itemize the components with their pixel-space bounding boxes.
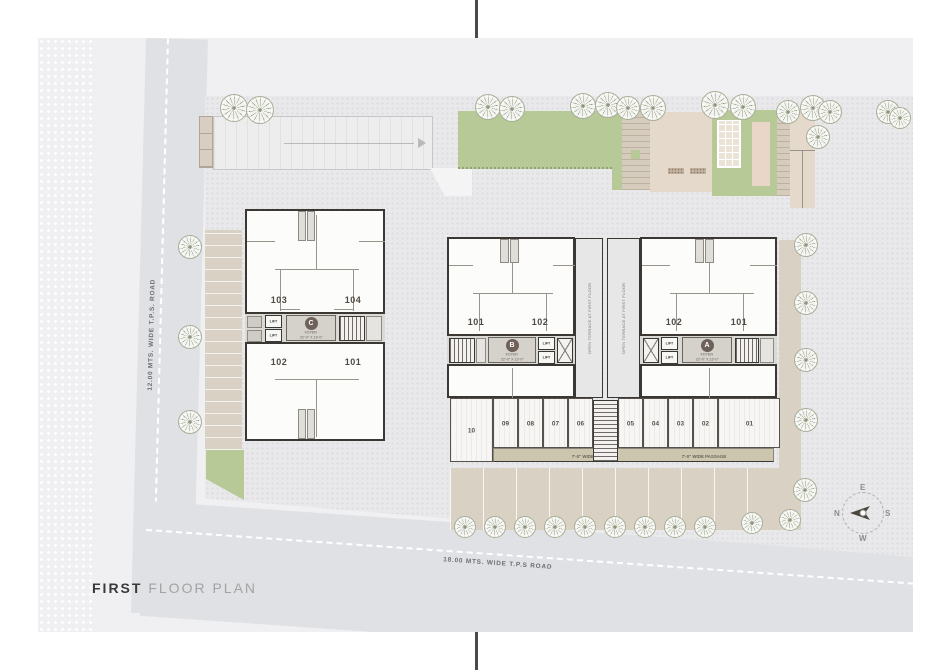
lift-box: LIFT xyxy=(265,329,282,342)
tree-icon xyxy=(806,125,830,149)
shop-label: 09 xyxy=(502,419,509,426)
tree-icon xyxy=(794,291,818,315)
staircase xyxy=(339,316,365,341)
tower-c-core: LIFT LIFT C FOYER 22'-0" X 13'-0" xyxy=(245,312,385,344)
planter xyxy=(631,150,640,159)
stair-landing xyxy=(760,338,774,363)
shop-unit: 02 xyxy=(693,398,718,448)
void-shaft xyxy=(643,338,659,363)
lift-label: LIFT xyxy=(666,355,674,359)
registration-mark-top xyxy=(475,0,478,38)
parking-ramp xyxy=(213,116,433,170)
open-terrace: OPEN TERRACE AT FIRST FLOOR xyxy=(575,238,603,398)
ramp-line xyxy=(284,143,414,144)
tree-icon xyxy=(701,91,729,119)
lift-box: LIFT xyxy=(538,337,555,350)
interior-wall xyxy=(553,265,575,266)
interior-wall xyxy=(670,293,754,294)
lift-label: LIFT xyxy=(270,319,278,323)
plan-sheet-page: 12.00 MTS. WIDE T.P.S. ROAD 18.00 MTS. W… xyxy=(0,0,951,670)
void-shaft xyxy=(557,338,573,363)
duct-shaft xyxy=(695,239,704,263)
shop-unit: 09 xyxy=(493,398,518,448)
shop-unit: 10 xyxy=(450,398,493,462)
tree-icon xyxy=(779,509,801,531)
parking-strip-left xyxy=(205,230,242,450)
shop-unit: 08 xyxy=(518,398,543,448)
tree-icon xyxy=(664,516,686,538)
shop-label: 07 xyxy=(552,419,559,426)
tree-icon xyxy=(454,516,476,538)
tree-icon xyxy=(604,516,626,538)
shop-label: 10 xyxy=(468,426,475,433)
road-left-label: 12.00 MTS. WIDE T.P.S. ROAD xyxy=(146,275,156,395)
title-rest: FLOOR PLAN xyxy=(142,580,257,596)
tree-icon xyxy=(640,95,666,121)
interior-wall xyxy=(247,241,275,242)
unit-label: 101 xyxy=(719,317,759,327)
compass-needle-icon xyxy=(842,492,884,534)
foyer-b: B FOYER 22'-0" X 13'-0" xyxy=(488,337,536,363)
duct-shaft xyxy=(298,409,306,439)
tree-icon xyxy=(793,478,817,502)
duct-shaft xyxy=(307,409,315,439)
foyer-dim: 22'-0" X 13'-0" xyxy=(501,358,524,360)
ramp-arrow-icon xyxy=(418,138,426,148)
shop-label: 01 xyxy=(745,419,752,426)
foyer-label: FOYER xyxy=(701,353,713,355)
stair-landing xyxy=(366,316,382,341)
tree-icon xyxy=(741,512,763,534)
compass-east: E xyxy=(860,483,865,492)
tree-icon xyxy=(514,516,536,538)
shop-unit: 01 xyxy=(718,398,780,448)
tower-a: 102 101 LIFT LIFT A FOYER 22'-0" X 13'-0… xyxy=(640,237,777,398)
shop-unit: 05 xyxy=(618,398,643,448)
lift-box: LIFT xyxy=(265,315,282,328)
duct-shaft xyxy=(307,211,315,241)
lift-label: LIFT xyxy=(543,341,551,345)
play-mat xyxy=(752,122,770,186)
garden-court xyxy=(650,112,712,192)
tower-b: 101 102 B FOYER 22'-0" X 13'-0" LIFT LIF… xyxy=(447,237,575,398)
tree-icon xyxy=(730,94,756,120)
unit-label: 103 xyxy=(257,295,301,305)
lift-label: LIFT xyxy=(543,355,551,359)
bench xyxy=(668,168,684,174)
shop-unit: 06 xyxy=(568,398,593,448)
shops-staircase xyxy=(593,400,618,462)
passage-label: 7'-0" WIDE PASSAGE xyxy=(671,454,737,459)
tree-icon xyxy=(570,93,596,119)
shop-label: 06 xyxy=(577,419,584,426)
unit-label: 101 xyxy=(331,357,375,367)
lift-box: LIFT xyxy=(661,351,678,364)
open-terrace: OPEN TERRACE AT FIRST FLOOR xyxy=(607,238,640,398)
tower-a-core: LIFT LIFT A FOYER 22'-0" X 13'-0" xyxy=(640,334,777,366)
garden-strip xyxy=(612,110,622,190)
tree-icon xyxy=(544,516,566,538)
tree-icon xyxy=(178,235,202,259)
page-title: FIRST FLOOR PLAN xyxy=(92,580,257,596)
shop-label: 03 xyxy=(677,419,684,426)
duct-shaft xyxy=(247,316,262,328)
tree-icon xyxy=(220,94,248,122)
lift-label: LIFT xyxy=(270,333,278,337)
tree-icon xyxy=(794,348,818,372)
tower-c: 103 104 102 101 LIFT LIFT C FOYER 22'-0"… xyxy=(245,209,385,441)
site-plan-sheet: 12.00 MTS. WIDE T.P.S. ROAD 18.00 MTS. W… xyxy=(38,38,913,632)
interior-wall xyxy=(642,265,670,266)
registration-mark-bottom xyxy=(475,632,478,670)
tree-icon xyxy=(818,100,842,124)
interior-wall xyxy=(473,293,553,294)
tree-icon xyxy=(616,96,640,120)
foyer-label: FOYER xyxy=(305,331,317,333)
interior-wall xyxy=(709,368,710,398)
foyer-dim: 22'-0" X 13'-0" xyxy=(696,358,719,360)
tree-icon xyxy=(794,233,818,257)
lift-label: LIFT xyxy=(666,341,674,345)
garden-play-area xyxy=(745,110,777,196)
shop-unit: 03 xyxy=(668,398,693,448)
interior-wall xyxy=(275,379,359,380)
compass-west: W xyxy=(859,534,867,543)
interior-wall xyxy=(280,309,300,310)
shop-label: 02 xyxy=(702,419,709,426)
staircase xyxy=(449,338,475,363)
tree-icon xyxy=(794,408,818,432)
title-bold: FIRST xyxy=(92,580,142,596)
tree-icon xyxy=(694,516,716,538)
duct-shaft xyxy=(298,211,306,241)
tree-icon xyxy=(484,516,506,538)
terrace-label: OPEN TERRACE AT FIRST FLOOR xyxy=(621,282,626,353)
interior-wall xyxy=(750,265,777,266)
stair-landing xyxy=(476,338,486,363)
unit-label: 102 xyxy=(257,357,301,367)
interior-wall xyxy=(359,241,385,242)
foyer-dim: 22'-0" X 13'-0" xyxy=(300,336,323,338)
service-boxes xyxy=(199,116,213,168)
staircase xyxy=(735,338,759,363)
tower-badge: B xyxy=(506,339,519,352)
compass-north: N xyxy=(834,509,840,518)
unit-label: 102 xyxy=(654,317,694,327)
tree-icon xyxy=(776,100,800,124)
compass-south: S xyxy=(885,509,890,518)
tree-icon xyxy=(499,96,525,122)
foyer-a: A FOYER 22'-0" X 13'-0" xyxy=(682,337,732,363)
interior-wall xyxy=(334,309,353,310)
dot-pattern xyxy=(38,38,96,632)
tree-icon xyxy=(475,94,501,120)
shop-label: 08 xyxy=(527,419,534,426)
shop-label: 05 xyxy=(627,419,634,426)
trellis-grid xyxy=(717,120,741,168)
garden-trellis xyxy=(712,110,745,196)
shop-label: 04 xyxy=(652,419,659,426)
tree-icon xyxy=(178,410,202,434)
duct-shaft xyxy=(510,239,519,263)
unit-label: 101 xyxy=(456,317,496,327)
duct-shaft xyxy=(500,239,509,263)
bench xyxy=(690,168,706,174)
tower-badge: C xyxy=(305,317,318,330)
compass: E S W N xyxy=(833,483,893,543)
interior-wall xyxy=(275,269,359,270)
passage: 7'-0" WIDE PASSAGE 7'-0" WIDE PASSAGE xyxy=(493,448,774,462)
tree-icon xyxy=(574,516,596,538)
interior-wall xyxy=(316,215,317,269)
foyer-label: FOYER xyxy=(506,353,518,355)
duct-shaft xyxy=(705,239,714,263)
terrace-label: OPEN TERRACE AT FIRST FLOOR xyxy=(587,282,592,353)
tree-icon xyxy=(634,516,656,538)
interior-wall xyxy=(316,379,317,437)
lift-box: LIFT xyxy=(538,351,555,364)
interior-wall xyxy=(449,265,473,266)
tree-icon xyxy=(246,96,274,124)
tower-b-core: B FOYER 22'-0" X 13'-0" LIFT LIFT xyxy=(447,334,575,366)
tree-icon xyxy=(889,107,911,129)
tree-icon xyxy=(178,325,202,349)
pergola xyxy=(622,110,650,190)
interior-wall xyxy=(512,368,513,398)
foyer-c: C FOYER 22'-0" X 13'-0" xyxy=(286,315,336,341)
lift-box: LIFT xyxy=(661,337,678,350)
tower-badge: A xyxy=(701,339,714,352)
shop-unit: 07 xyxy=(543,398,568,448)
unit-label: 102 xyxy=(520,317,560,327)
shop-unit: 04 xyxy=(643,398,668,448)
unit-label: 104 xyxy=(331,295,375,305)
lawn xyxy=(458,111,612,169)
duct-shaft xyxy=(247,330,262,342)
